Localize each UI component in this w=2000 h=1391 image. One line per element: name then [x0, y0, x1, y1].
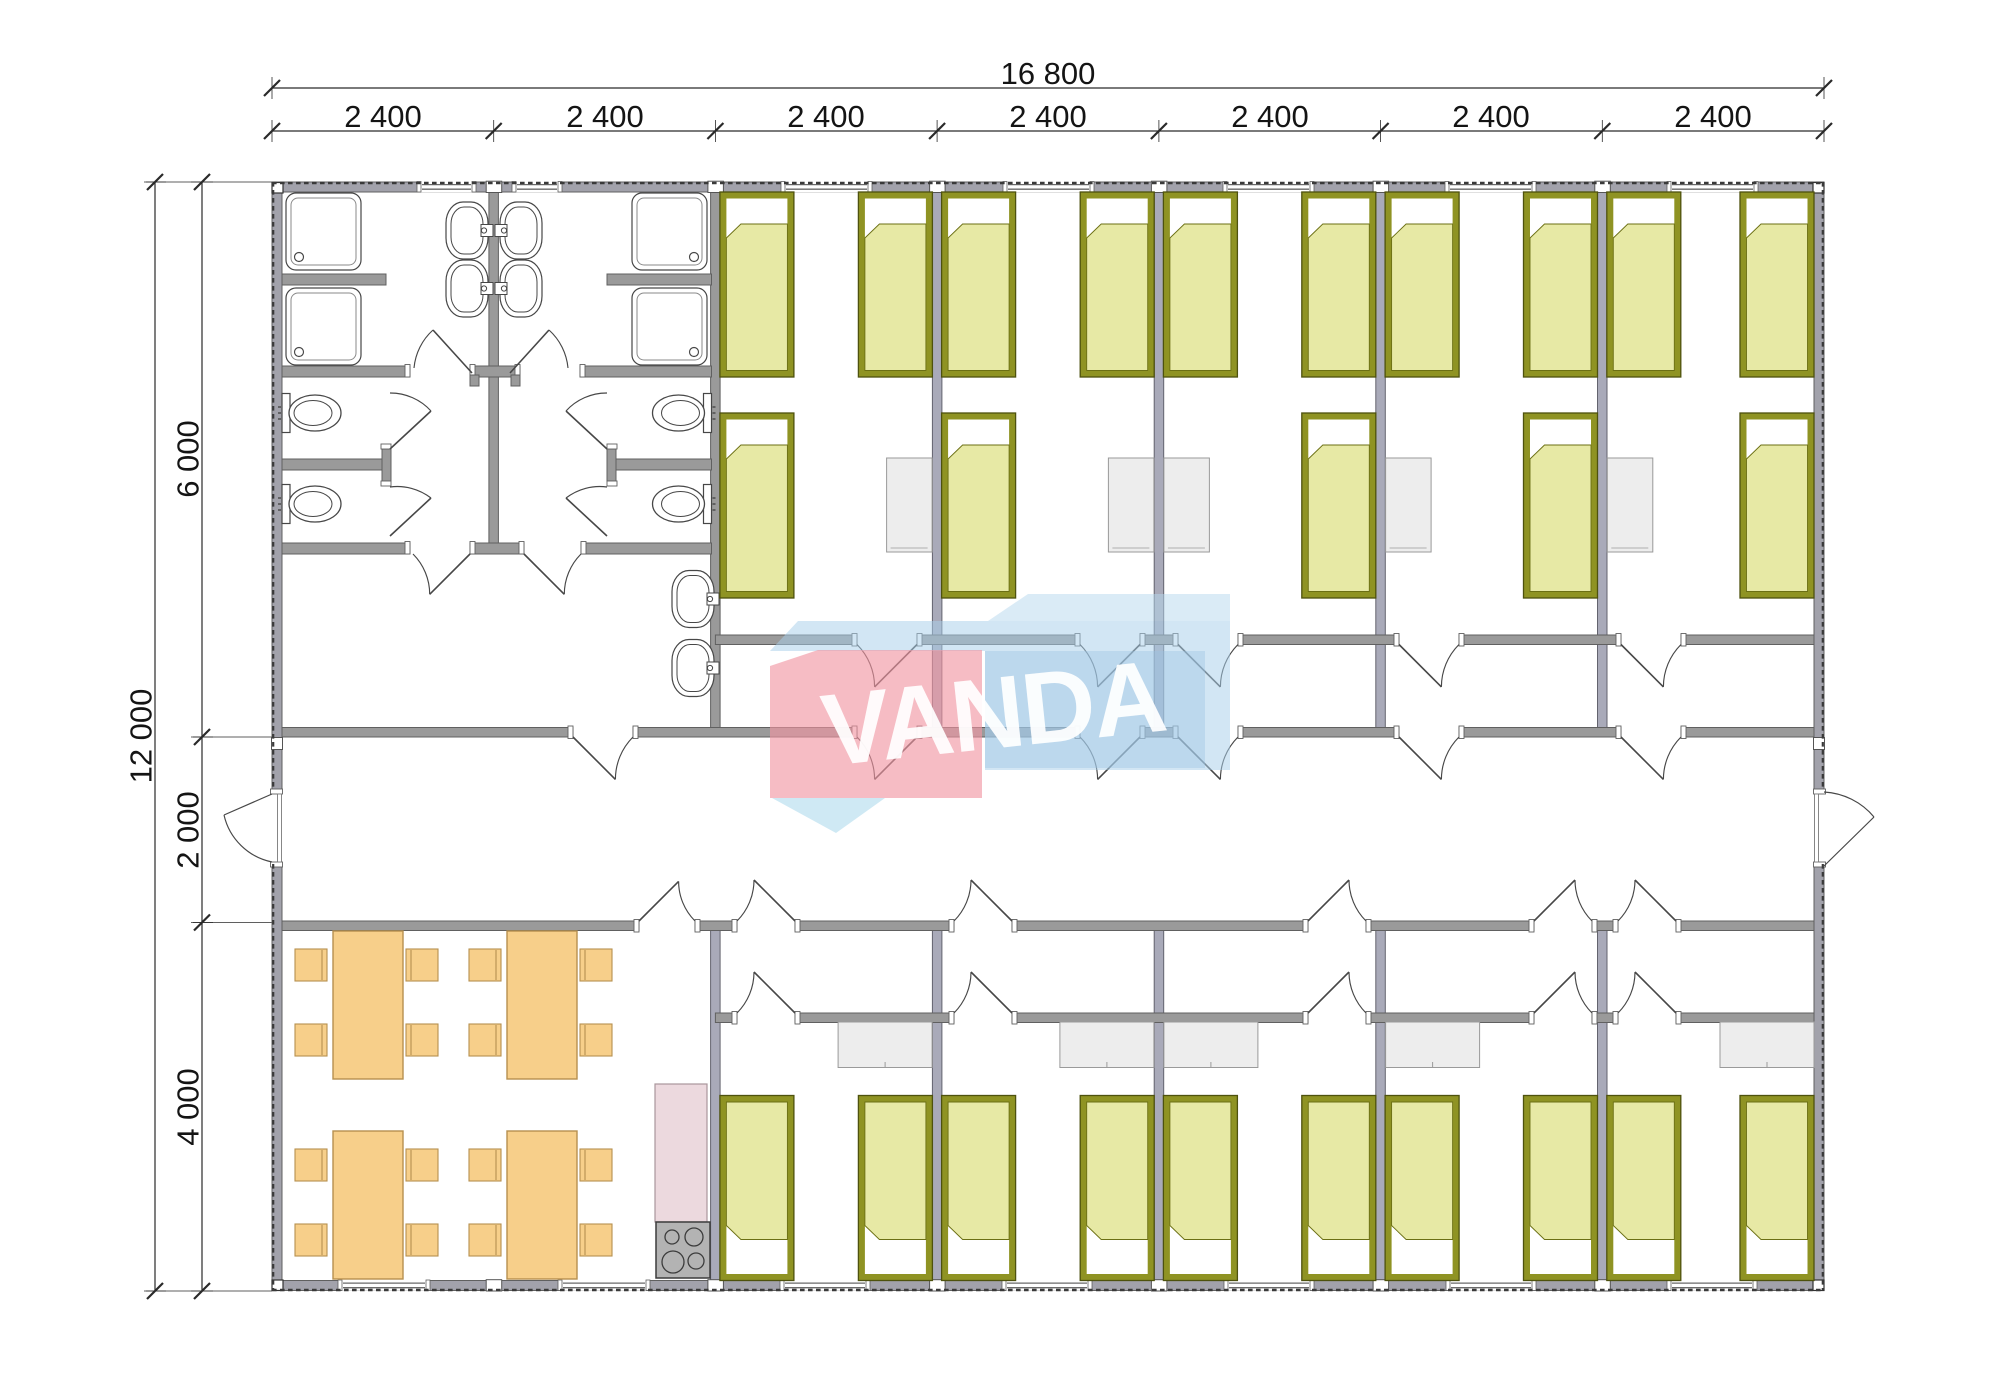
svg-text:2 400: 2 400 — [1231, 99, 1309, 134]
svg-text:2 400: 2 400 — [1452, 99, 1530, 134]
svg-text:4 000: 4 000 — [171, 1068, 206, 1146]
svg-text:2 400: 2 400 — [787, 99, 865, 134]
svg-text:6 000: 6 000 — [171, 420, 206, 498]
svg-text:2 000: 2 000 — [171, 791, 206, 869]
svg-text:2 400: 2 400 — [566, 99, 644, 134]
svg-text:2 400: 2 400 — [344, 99, 422, 134]
svg-text:2 400: 2 400 — [1674, 99, 1752, 134]
svg-text:16 800: 16 800 — [1001, 56, 1096, 91]
svg-text:2 400: 2 400 — [1009, 99, 1087, 134]
svg-text:12 000: 12 000 — [124, 689, 159, 784]
